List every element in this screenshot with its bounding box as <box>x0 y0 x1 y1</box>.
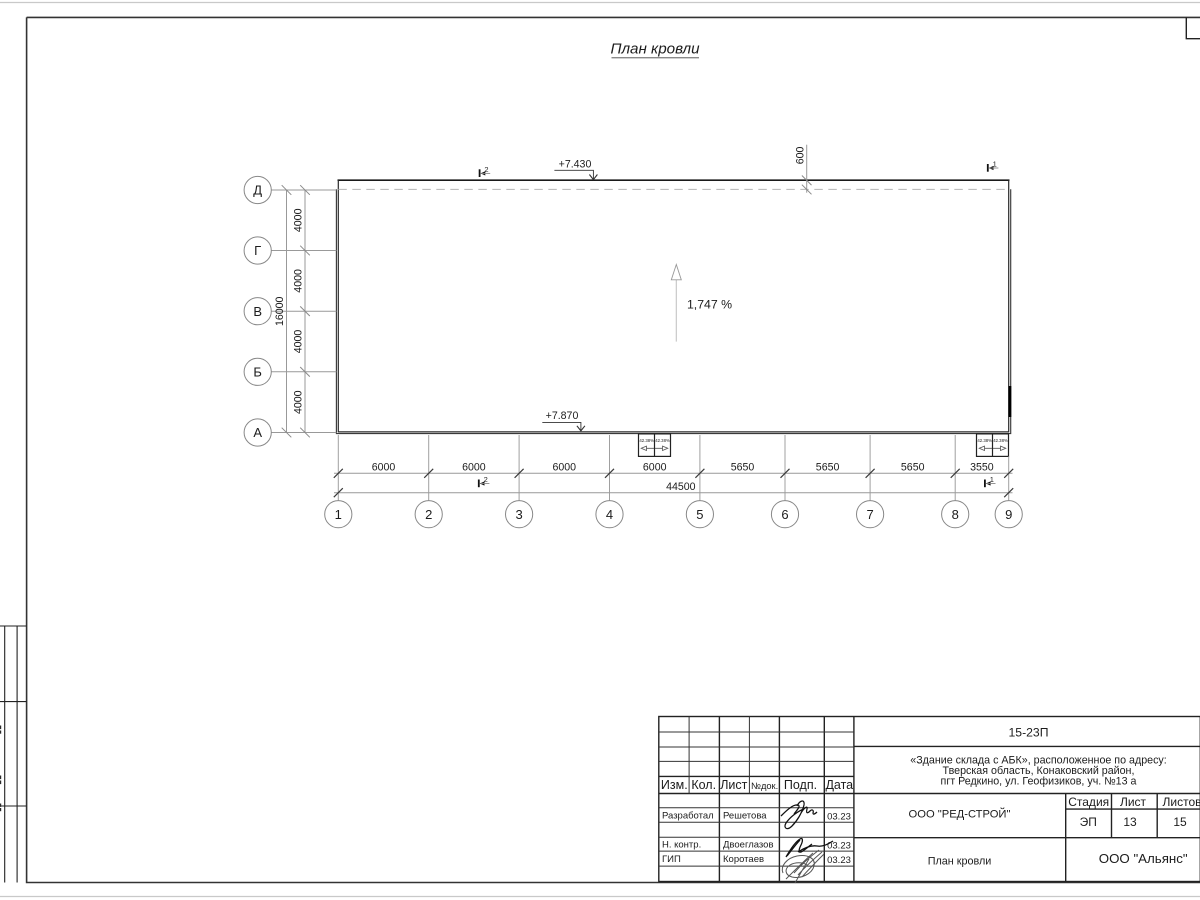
svg-text:№док.: №док. <box>751 781 778 791</box>
svg-text:Изм.: Изм. <box>661 778 688 792</box>
svg-text:План кровли: План кровли <box>610 41 700 58</box>
svg-text:42.38%: 42.38% <box>977 438 992 443</box>
svg-text:2: 2 <box>484 475 488 484</box>
svg-text:Кол.: Кол. <box>691 778 716 792</box>
svg-text:+7.870: +7.870 <box>546 410 579 422</box>
svg-text:4000: 4000 <box>293 208 305 232</box>
svg-text:2: 2 <box>425 507 432 522</box>
svg-text:42.38%: 42.38% <box>639 438 654 443</box>
svg-text:15: 15 <box>1173 815 1187 829</box>
svg-text:1,747 %: 1,747 % <box>687 297 732 311</box>
svg-text:8: 8 <box>952 507 959 522</box>
svg-text:Дата: Дата <box>825 778 853 792</box>
svg-text:ЭП: ЭП <box>1080 815 1097 829</box>
svg-text:5650: 5650 <box>816 462 840 474</box>
svg-text:Стадия: Стадия <box>1068 795 1109 809</box>
svg-text:Лист: Лист <box>1120 795 1147 809</box>
svg-text:5650: 5650 <box>731 462 755 474</box>
svg-text:03.23: 03.23 <box>827 855 851 866</box>
svg-text:Подп.: Подп. <box>784 778 817 792</box>
svg-text:16000: 16000 <box>274 296 286 326</box>
svg-text:+7.430: +7.430 <box>559 158 592 170</box>
svg-text:6000: 6000 <box>462 462 486 474</box>
svg-text:03.23: 03.23 <box>827 811 851 822</box>
svg-text:ГИП: ГИП <box>662 854 681 865</box>
svg-text:6000: 6000 <box>372 462 396 474</box>
svg-text:3550: 3550 <box>970 462 994 474</box>
svg-text:9: 9 <box>1005 507 1012 522</box>
svg-text:42.38%: 42.38% <box>993 438 1008 443</box>
svg-text:4000: 4000 <box>293 330 305 354</box>
svg-text:Листов: Листов <box>1163 795 1200 809</box>
svg-text:А: А <box>253 425 262 440</box>
svg-text:Двоеглазов: Двоеглазов <box>723 840 774 851</box>
svg-text:5: 5 <box>696 507 703 522</box>
svg-text:6000: 6000 <box>553 462 577 474</box>
svg-text:4: 4 <box>606 507 613 522</box>
svg-text:4000: 4000 <box>293 269 305 293</box>
svg-text:4000: 4000 <box>293 390 305 414</box>
svg-text:3: 3 <box>515 507 522 522</box>
svg-text:44500: 44500 <box>666 481 696 493</box>
svg-text:2: 2 <box>484 165 488 174</box>
svg-text:6: 6 <box>781 507 788 522</box>
svg-text:Г: Г <box>254 243 261 258</box>
svg-text:Разработал: Разработал <box>662 810 714 821</box>
svg-text:Б: Б <box>253 365 262 380</box>
svg-text:15-23П: 15-23П <box>1009 725 1049 739</box>
svg-text:6000: 6000 <box>643 462 667 474</box>
svg-text:Коротаев: Коротаев <box>723 854 764 865</box>
svg-text:В: В <box>253 304 262 319</box>
svg-text:Лист: Лист <box>720 778 747 792</box>
svg-text:План кровли: План кровли <box>928 855 992 867</box>
svg-text:1: 1 <box>993 160 997 169</box>
svg-text:13: 13 <box>1123 815 1137 829</box>
svg-text:7: 7 <box>866 507 873 522</box>
svg-text:ООО "РЕД-СТРОЙ": ООО "РЕД-СТРОЙ" <box>909 808 1011 821</box>
svg-text:1: 1 <box>335 507 342 522</box>
svg-text:Решетова: Решетова <box>723 810 767 821</box>
svg-text:ООО "Альянс": ООО "Альянс" <box>1099 851 1188 866</box>
svg-text:42.38%: 42.38% <box>655 438 670 443</box>
svg-text:5650: 5650 <box>901 462 925 474</box>
svg-text:Д: Д <box>253 183 262 198</box>
svg-text:600: 600 <box>795 146 807 164</box>
svg-text:1: 1 <box>990 475 994 484</box>
svg-text:пгт Редкино, ул. Геофизиков, у: пгт Редкино, ул. Геофизиков, уч. №13 а <box>941 776 1137 788</box>
svg-text:Н. контр.: Н. контр. <box>662 840 701 851</box>
